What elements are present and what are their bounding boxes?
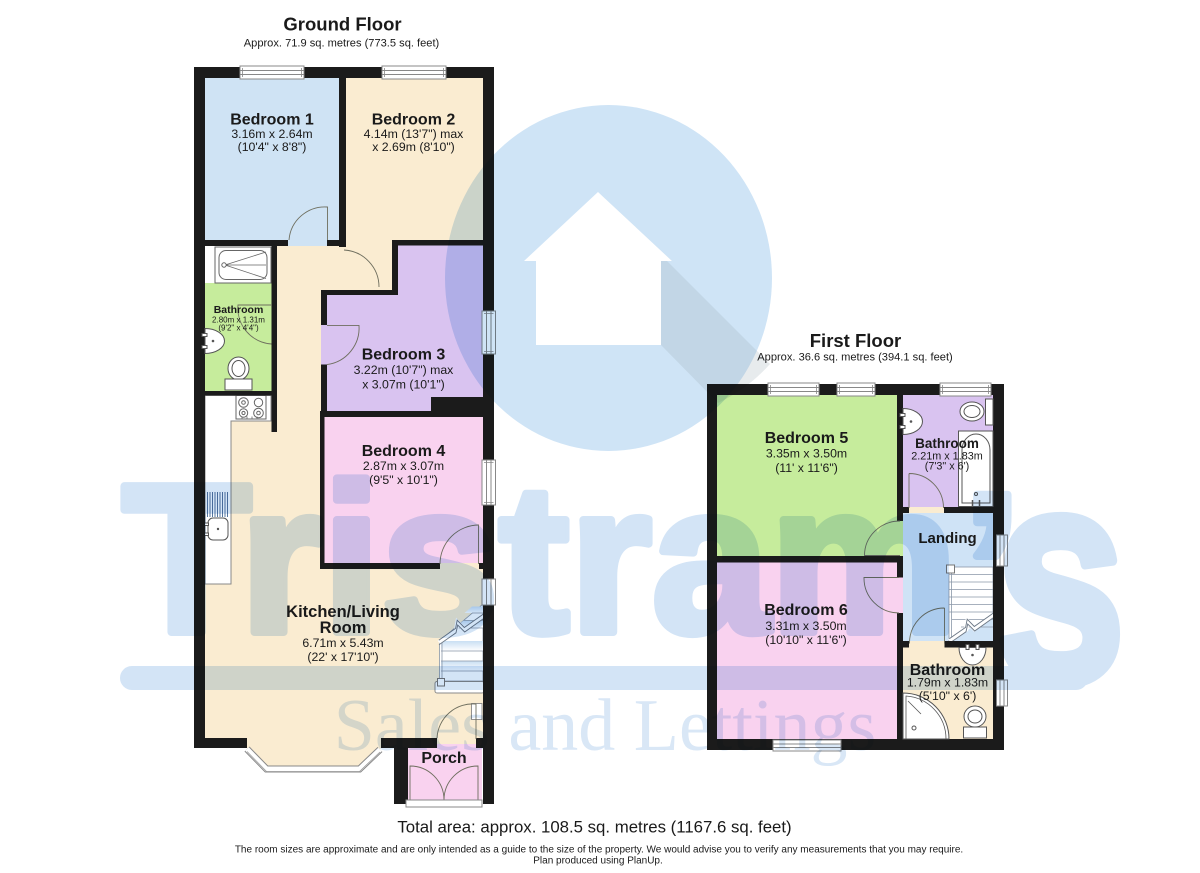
svg-text:Tristram: Tristram: [122, 440, 958, 677]
svg-text:s: s: [995, 406, 1126, 746]
svg-text:Sales and Lettings: Sales and Lettings: [334, 685, 877, 767]
